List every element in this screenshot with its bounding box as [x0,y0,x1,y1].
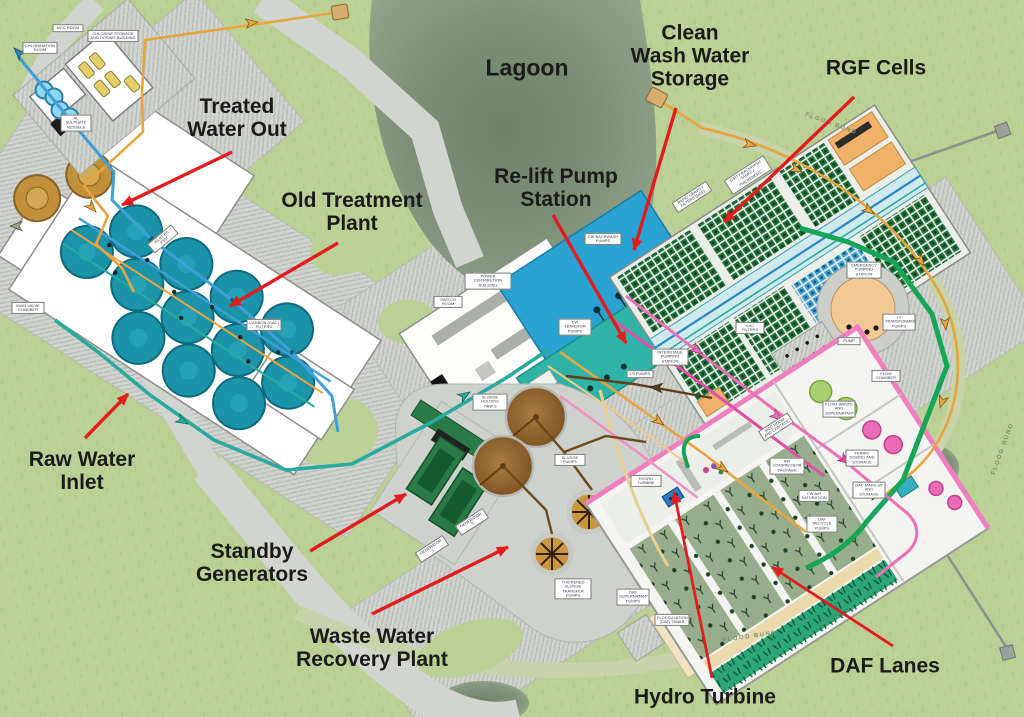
annotation-old-treatment-plant: Old TreatmentPlant [281,189,422,235]
plan-label: MCC ROOM [53,24,84,32]
plan-label: AIR COMPRESSOR PACKAGE [770,458,805,475]
annotation-treated-water-out: TreatedWater Out [187,95,287,141]
annotation-standby-generators: StandbyGenerators [196,540,308,586]
plan-label: DAF SUPERNATANT PUMPS [617,589,650,606]
plan-label: DAF RECYCLE PUMPS [807,516,838,533]
plan-label: GAC MAKE-UP AND STORAGE [853,482,886,499]
plan-label: FLOAT WASTE AND SUPERNATANT [823,401,856,418]
plan-label: SLUDGE HOLDING TANKS [473,394,508,411]
annotation-rgf-cells: RGF Cells [826,56,926,79]
plan-label: CW BACKWASH PUMPS [585,233,622,245]
plan-label: LV TRANSFORMER PUMPS [883,314,916,331]
plan-label: AL SULPHATE VESSELS [61,115,92,132]
plan-label: MAIN VALVE CHAMBER [12,302,45,314]
annotation-clean-wash-water-storage: CleanWash WaterStorage [631,21,750,90]
plan-label: FLOW CHAMBER [872,370,901,382]
plan-label: INTERSTAGE PUMPING STATION [652,349,689,366]
plan-label: CW AIR SATURATION [799,490,830,502]
plan-label: CHLORINATION ROOM [23,42,58,54]
annotation-waste-water-recovery-plant: Waste WaterRecovery Plant [296,625,448,671]
plan-label: GAC FILTERS [736,322,765,334]
plan-label: EMERGENCY PUMPING STATION [847,262,882,279]
site-plan: MCC ROOM CHLORINE STORAGE AND DOSING BUI… [0,0,1024,717]
annotation-relift-pump-station: Re-lift PumpStation [494,165,618,211]
plan-label: CW TRANSFER PUMPS [559,319,592,336]
plan-label: FERRIC DOSING AND STORAGE [846,450,879,467]
plan-label: CHLORINE STORAGE AND DOSING BUILDING [88,30,139,42]
plan-label: POWER DISTRIBUTION BUILDING [465,273,512,290]
annotation-lagoon: Lagoon [485,55,568,80]
plan-label: HYDRO TURBINE [631,475,662,487]
plan-label: CARBON (GAC) FILTERS [247,319,282,331]
annotation-hydro-turbine: Hydro Turbine [634,685,776,708]
site-plan-artwork [0,0,1024,717]
annotation-raw-water-inlet: Raw WaterInlet [29,448,136,494]
plan-label: LS PUMPS [627,370,654,378]
plan-label: SWITCH ROOM [434,296,463,308]
plan-label: SLUDGE PUMPS [555,454,586,466]
plan-label: PUMP [838,337,861,345]
plan-label: FLOCCULATION (DAF) TANKS [655,614,690,626]
annotation-daf-lanes: DAF Lanes [830,654,940,677]
plan-label: THICKENED SLUDGE TRANSFER PUMPS [555,578,592,599]
